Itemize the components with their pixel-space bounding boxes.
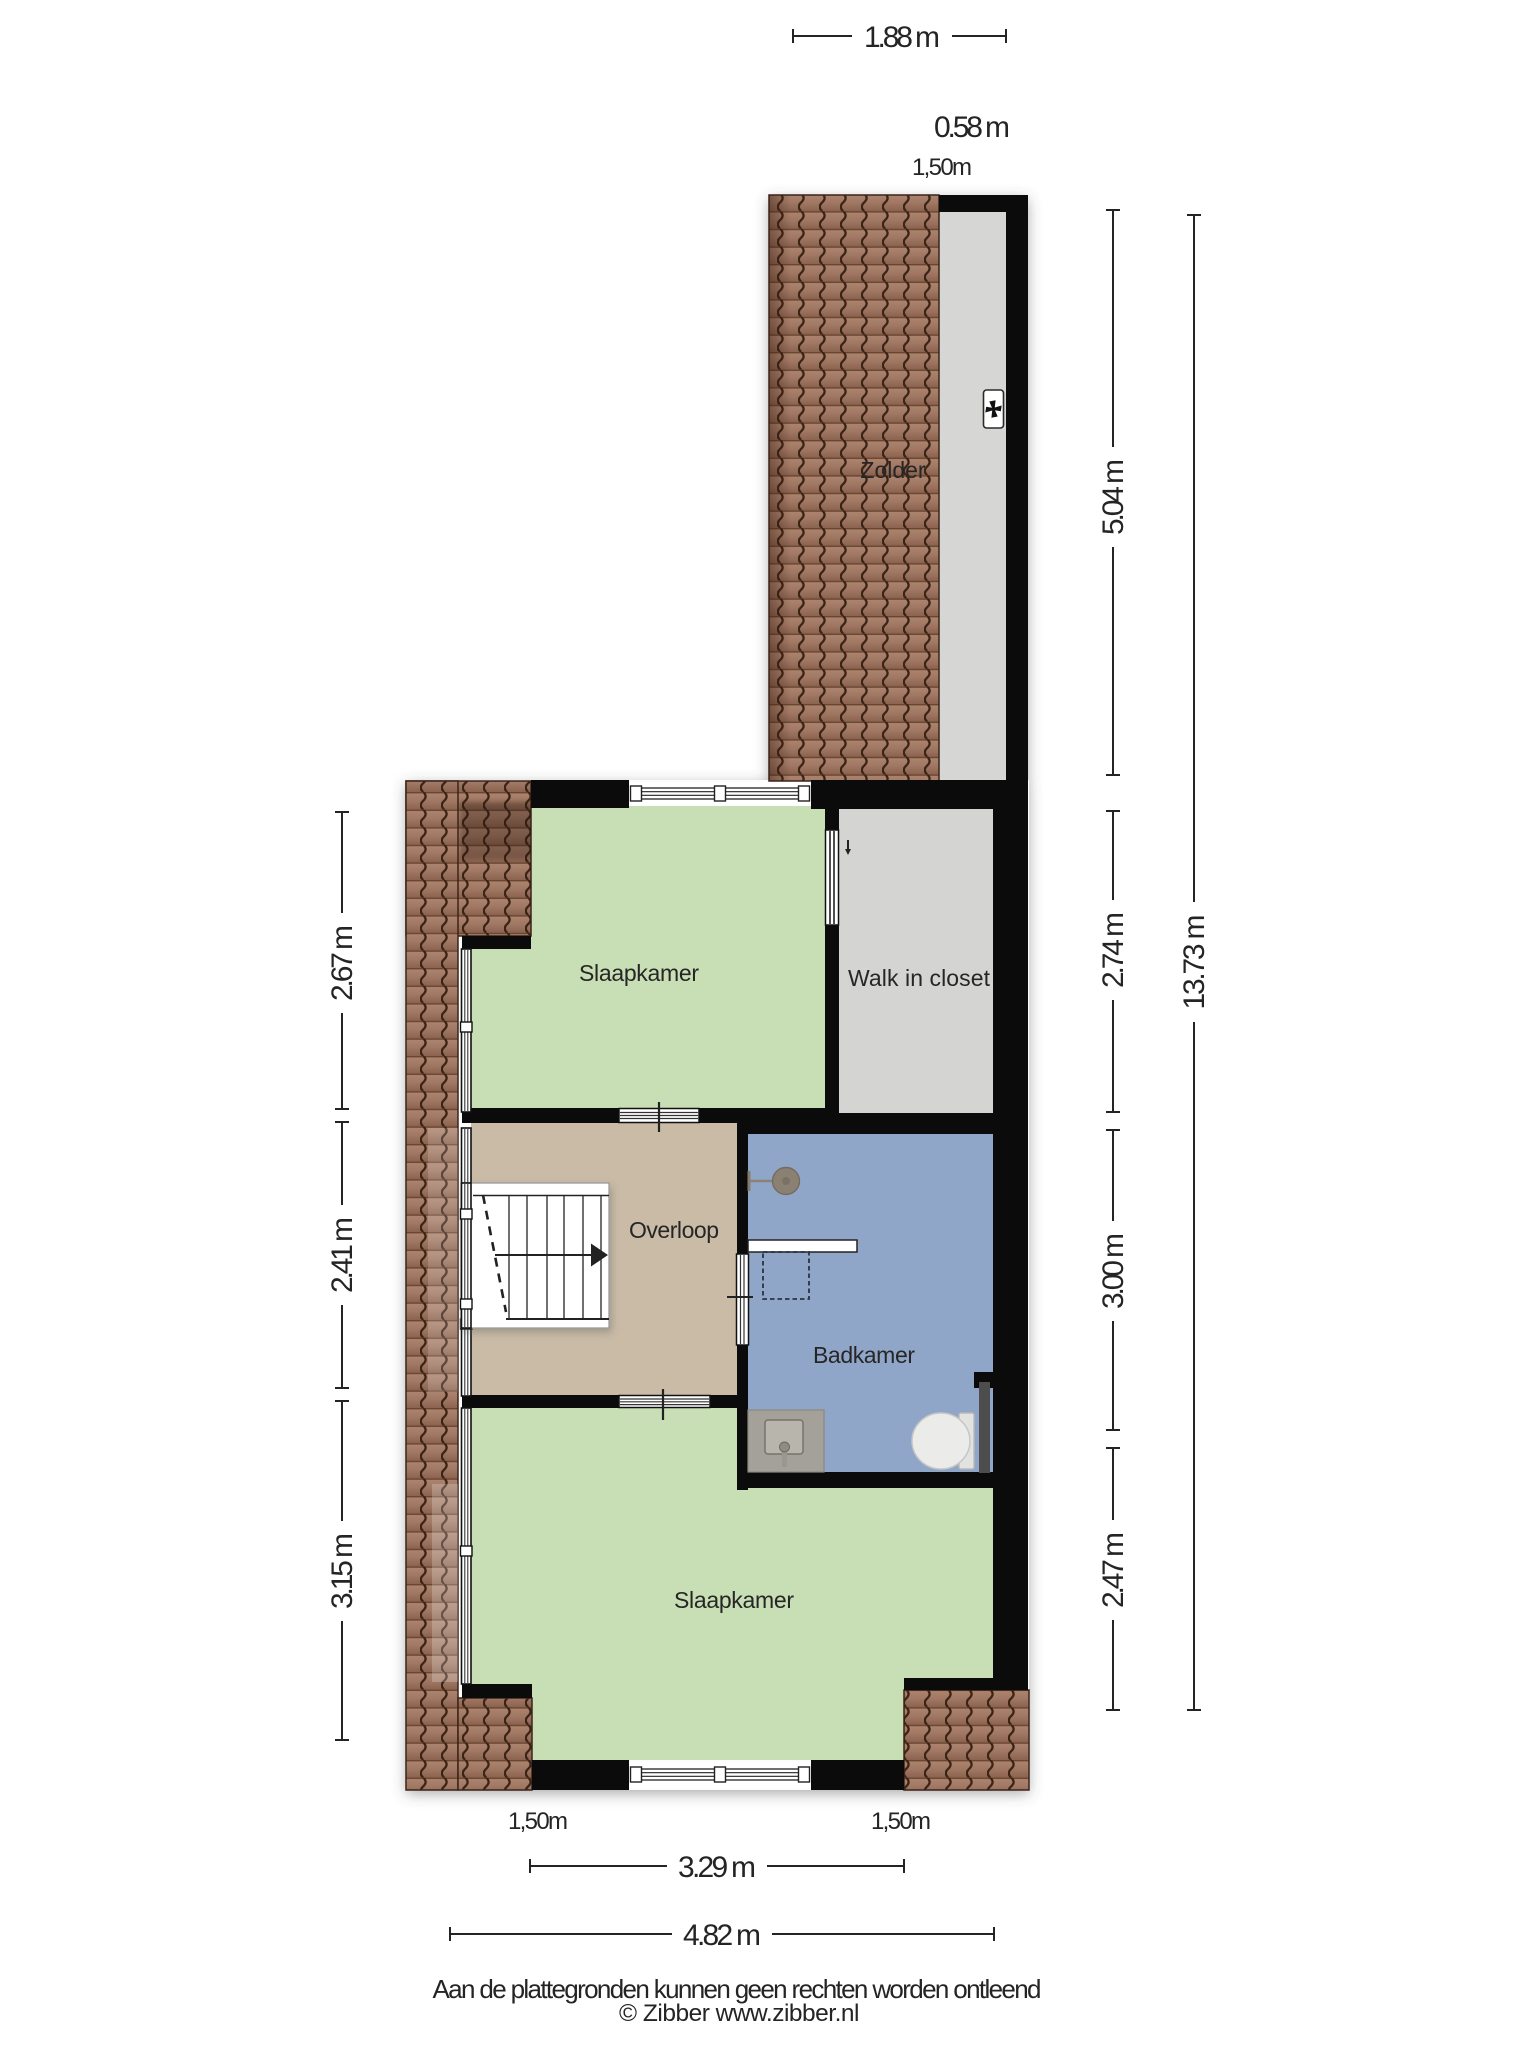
svg-text:4.82 m: 4.82 m bbox=[683, 1919, 761, 1952]
svg-text:Slaapkamer: Slaapkamer bbox=[674, 1587, 794, 1613]
svg-text:© Zibber www.zibber.nl: © Zibber www.zibber.nl bbox=[619, 2000, 859, 2027]
svg-text:3.29 m: 3.29 m bbox=[678, 1851, 756, 1884]
svg-text:1,50m: 1,50m bbox=[508, 1808, 568, 1835]
svg-text:Slaapkamer: Slaapkamer bbox=[579, 960, 699, 986]
svg-text:2.74 m: 2.74 m bbox=[1097, 912, 1130, 988]
svg-text:2.41 m: 2.41 m bbox=[326, 1217, 359, 1293]
svg-text:1,50m: 1,50m bbox=[871, 1808, 931, 1835]
svg-text:1.88 m: 1.88 m bbox=[864, 21, 940, 54]
svg-text:Badkamer: Badkamer bbox=[813, 1342, 915, 1368]
svg-text:13.73 m: 13.73 m bbox=[1178, 915, 1211, 1010]
svg-text:0.58 m: 0.58 m bbox=[934, 111, 1010, 144]
svg-text:1,50m: 1,50m bbox=[912, 154, 972, 181]
svg-text:3.00 m: 3.00 m bbox=[1097, 1233, 1130, 1309]
svg-text:2.67 m: 2.67 m bbox=[326, 925, 359, 1001]
svg-text:2.47 m: 2.47 m bbox=[1097, 1532, 1130, 1608]
svg-text:Overloop: Overloop bbox=[629, 1217, 719, 1243]
svg-text:5.04 m: 5.04 m bbox=[1097, 459, 1130, 535]
svg-text:Walk in closet: Walk in closet bbox=[848, 965, 991, 991]
svg-text:3.15 m: 3.15 m bbox=[326, 1533, 359, 1609]
svg-text:Zolder: Zolder bbox=[860, 457, 926, 483]
